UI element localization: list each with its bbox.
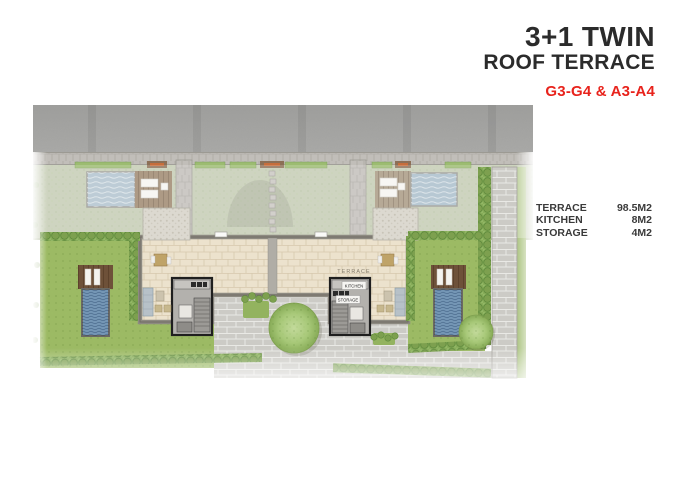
kitchen-label: KITCHEN — [345, 284, 363, 289]
spec-value: 8M2 — [632, 214, 652, 226]
spec-label: KITCHEN — [536, 214, 583, 226]
plunge-pool-left — [78, 265, 113, 336]
spec-value: 4M2 — [632, 227, 652, 239]
gravel-patch-left — [143, 208, 190, 240]
core-left — [172, 278, 212, 335]
coffee-table — [384, 291, 392, 301]
spec-label: TERRACE — [536, 202, 587, 214]
sidewalk-wash — [33, 152, 533, 165]
terrace-label: TERRACE — [337, 269, 370, 275]
area-table: TERRACE 98.5M2 KITCHEN 8M2 STORAGE 4M2 — [536, 202, 652, 239]
spec-value: 98.5M2 — [617, 202, 652, 214]
coffee-table — [156, 291, 164, 301]
left-fade — [33, 152, 47, 395]
upper-fade-wash — [33, 165, 533, 238]
brochure-page: 3+1 TWIN ROOF TERRACE G3-G4 & A3-A4 TERR… — [0, 0, 679, 480]
title-block: 3+1 TWIN ROOF TERRACE G3-G4 & A3-A4 — [483, 22, 655, 100]
bottom-fade — [33, 348, 533, 395]
spec-row-kitchen: KITCHEN 8M2 — [536, 214, 652, 226]
spec-label: STORAGE — [536, 227, 588, 239]
right-walkway — [492, 167, 517, 378]
center-walk — [268, 238, 277, 294]
plan-title: 3+1 TWIN — [483, 22, 655, 51]
site-plan: TERRACE KITCHEN STORAGE — [33, 105, 533, 395]
right-fade — [516, 152, 533, 395]
unit-code: G3-G4 & A3-A4 — [483, 83, 655, 100]
spec-row-storage: STORAGE 4M2 — [536, 227, 652, 239]
storage-label: STORAGE — [338, 298, 359, 303]
plan-subtitle: ROOF TERRACE — [483, 51, 655, 74]
spec-row-terrace: TERRACE 98.5M2 — [536, 202, 652, 214]
staircase — [194, 298, 210, 332]
road — [33, 105, 533, 152]
